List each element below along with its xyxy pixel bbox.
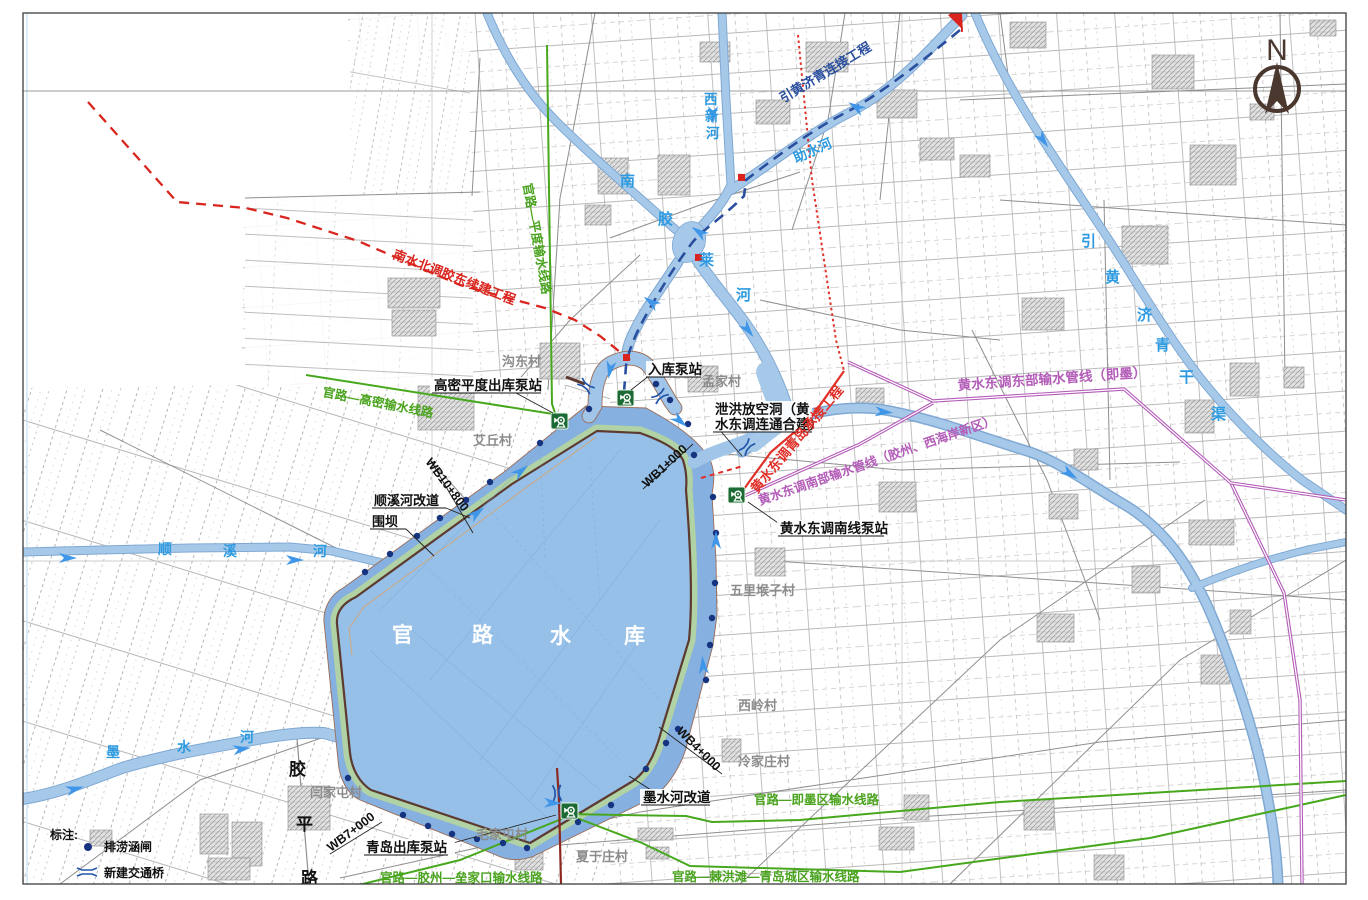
- svg-text:水: 水: [550, 625, 572, 648]
- svg-text:西岭村: 西岭村: [738, 698, 777, 713]
- svg-text:毛家屯村: 毛家屯村: [476, 827, 528, 842]
- svg-text:水: 水: [177, 739, 192, 755]
- svg-text:官路—棘洪滩—青岛城区输水线路: 官路—棘洪滩—青岛城区输水线路: [672, 869, 860, 884]
- svg-text:黄: 黄: [1105, 268, 1120, 286]
- svg-text:黄水东调南线泵站: 黄水东调南线泵站: [780, 520, 888, 536]
- svg-text:围坝: 围坝: [372, 514, 398, 529]
- svg-text:入库泵站: 入库泵站: [648, 361, 702, 377]
- svg-text:胶: 胶: [658, 210, 673, 228]
- svg-text:青岛出库泵站: 青岛出库泵站: [366, 839, 447, 855]
- svg-text:渠: 渠: [1211, 405, 1226, 423]
- svg-text:平: 平: [296, 815, 313, 834]
- svg-text:青: 青: [1155, 336, 1170, 354]
- svg-text:高密平度出库泵站: 高密平度出库泵站: [434, 377, 542, 393]
- svg-text:排涝涵闸: 排涝涵闸: [104, 839, 152, 854]
- svg-text:官路—即墨区输水线路: 官路—即墨区输水线路: [754, 792, 880, 807]
- svg-text:库: 库: [624, 624, 645, 648]
- svg-text:沟东村: 沟东村: [502, 354, 541, 369]
- svg-text:济: 济: [1137, 306, 1153, 324]
- svg-text:河: 河: [240, 729, 254, 745]
- svg-text:夏于庄村: 夏于庄村: [575, 849, 628, 864]
- svg-text:新: 新: [705, 108, 719, 124]
- svg-text:墨水河改道: 墨水河改道: [643, 789, 711, 805]
- svg-text:引: 引: [1081, 233, 1096, 250]
- svg-text:南: 南: [620, 172, 635, 190]
- svg-text:五里堠子村: 五里堠子村: [730, 583, 795, 598]
- svg-text:莱: 莱: [699, 251, 714, 269]
- svg-text:新建交通桥: 新建交通桥: [104, 865, 165, 880]
- svg-text:官路—胶州—垒家口输水线路: 官路—胶州—垒家口输水线路: [380, 870, 543, 885]
- svg-text:溪: 溪: [223, 543, 238, 559]
- svg-text:泄洪放空洞（黄: 泄洪放空洞（黄: [715, 401, 810, 417]
- svg-text:孟家村: 孟家村: [702, 374, 741, 389]
- svg-text:顺溪河改道: 顺溪河改道: [374, 493, 439, 508]
- svg-text:干: 干: [1179, 369, 1194, 386]
- svg-text:标注:: 标注:: [49, 827, 78, 842]
- svg-text:河: 河: [736, 286, 751, 304]
- svg-text:胶: 胶: [289, 759, 306, 779]
- svg-text:官: 官: [392, 623, 413, 647]
- svg-text:顺: 顺: [158, 541, 172, 557]
- svg-text:西: 西: [704, 92, 718, 107]
- svg-text:冷家庄村: 冷家庄村: [738, 754, 790, 769]
- svg-text:路: 路: [472, 623, 494, 647]
- svg-text:河: 河: [706, 125, 720, 141]
- svg-text:闫家屯村: 闫家屯村: [310, 785, 362, 800]
- svg-text:河: 河: [313, 543, 327, 559]
- svg-text:艾丘村: 艾丘村: [473, 433, 512, 448]
- svg-text:墨: 墨: [106, 744, 120, 760]
